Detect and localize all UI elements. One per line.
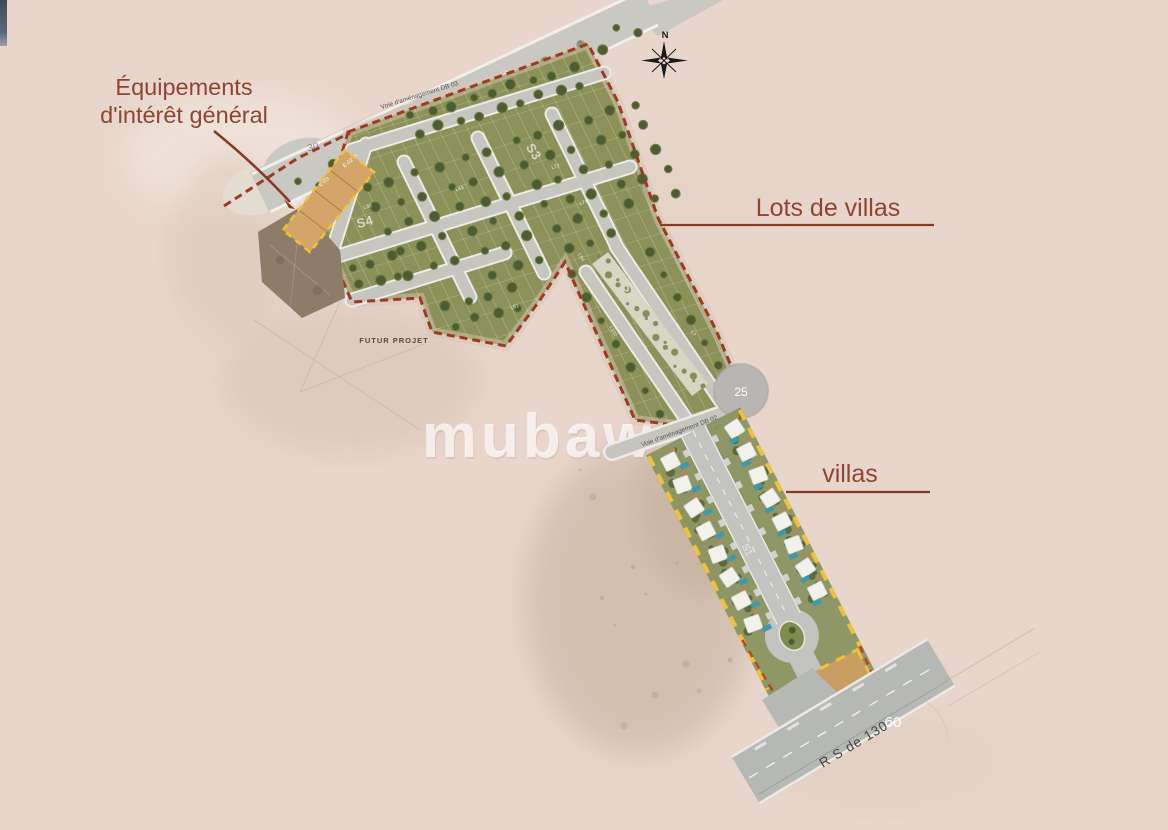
shrub-icon <box>643 310 650 317</box>
tree-icon <box>556 85 566 95</box>
shrub-icon <box>652 334 659 341</box>
tree-icon <box>686 315 696 325</box>
tree-icon <box>450 256 459 265</box>
tree-icon <box>462 154 470 162</box>
svg-text:mubaw: mubaw <box>422 402 656 471</box>
callout-villas: villas <box>786 460 930 492</box>
shrub-icon <box>626 302 629 305</box>
tree-icon <box>522 230 532 240</box>
tree-icon <box>586 239 594 247</box>
tree-icon <box>467 226 477 236</box>
tree-icon <box>465 298 473 306</box>
tree-icon <box>598 45 608 55</box>
tree-icon <box>553 120 563 130</box>
tree-icon <box>457 117 465 125</box>
tree-icon <box>598 317 605 324</box>
tree-icon <box>613 24 620 31</box>
tree-icon <box>446 102 456 112</box>
tree-icon <box>534 90 543 99</box>
site-plan-svg: mubaw mubaw 30 Voie d'aménagement DB 03 <box>0 0 1168 825</box>
tree-icon <box>394 273 402 281</box>
tree-icon <box>482 148 491 157</box>
tree-icon <box>701 339 708 346</box>
shrub-icon <box>692 379 695 382</box>
tree-icon <box>349 264 357 272</box>
tree-icon <box>634 29 642 37</box>
tree-icon <box>632 102 640 110</box>
shrub-icon <box>634 306 639 311</box>
terrain-speckle <box>645 593 648 596</box>
tree-icon <box>650 144 660 154</box>
tree-icon <box>714 361 722 369</box>
tree-icon <box>545 150 555 160</box>
tree-icon <box>404 217 413 226</box>
tree-icon <box>475 112 484 121</box>
tree-icon <box>645 247 655 257</box>
tree-icon <box>433 120 443 130</box>
tree-icon <box>366 260 375 269</box>
tree-icon <box>605 161 613 169</box>
shrub-icon <box>605 271 612 278</box>
tree-icon <box>579 165 588 174</box>
tree-icon <box>452 323 460 331</box>
tree-icon <box>387 250 397 260</box>
tree-icon <box>481 247 489 255</box>
tree-icon <box>515 212 524 221</box>
tree-icon <box>554 176 562 184</box>
tree-icon <box>429 211 439 221</box>
tree-icon <box>481 196 491 206</box>
tree-icon <box>612 340 620 348</box>
tree-icon <box>494 167 504 177</box>
terrain-speckle <box>697 689 702 694</box>
tree-icon <box>505 79 515 89</box>
tree-icon <box>642 387 649 394</box>
terrain-speckle <box>683 661 690 668</box>
terrain-speckle <box>728 658 733 663</box>
tree-icon <box>576 82 584 90</box>
tree-icon <box>397 198 405 206</box>
tree-icon <box>403 270 413 280</box>
tree-icon <box>639 120 648 129</box>
tree-icon <box>671 189 680 198</box>
tree-icon <box>624 198 634 208</box>
tree-icon <box>596 135 606 145</box>
shrub-icon <box>690 373 697 380</box>
svg-text:25: 25 <box>734 385 748 399</box>
tree-icon <box>626 362 636 372</box>
tree-icon <box>354 280 363 289</box>
svg-text:N: N <box>662 30 669 41</box>
terrain-speckle <box>614 624 617 627</box>
callout-equipements-line2: d'intérêt général <box>100 102 268 128</box>
tree-icon <box>489 217 497 225</box>
callout-equipements-line1: Équipements <box>115 74 252 100</box>
tree-icon <box>455 202 464 211</box>
tree-icon <box>411 169 419 177</box>
tree-icon <box>406 111 414 119</box>
tree-icon <box>384 228 392 236</box>
shrub-icon <box>616 278 619 281</box>
tree-icon <box>494 308 504 318</box>
tree-icon <box>440 301 450 311</box>
tree-icon <box>470 94 478 102</box>
tree-icon <box>488 89 497 98</box>
tree-icon <box>664 165 672 173</box>
shrub-icon <box>663 345 668 350</box>
tree-icon <box>295 178 302 185</box>
tree-icon <box>532 179 542 189</box>
shrub-icon <box>700 383 705 388</box>
terrain-speckle <box>676 562 679 565</box>
shrub-icon <box>597 254 600 257</box>
tree-icon <box>520 160 529 169</box>
tree-icon <box>660 271 667 278</box>
terrain-speckle <box>621 723 628 730</box>
tree-icon <box>569 62 579 72</box>
tree-icon <box>513 137 521 145</box>
shrub-icon <box>606 258 611 263</box>
tree-icon <box>617 180 626 189</box>
svg-text:villas: villas <box>822 460 878 488</box>
tree-icon <box>600 210 608 218</box>
tree-icon <box>541 200 549 208</box>
tree-icon <box>513 260 523 270</box>
tree-icon <box>415 130 424 139</box>
tree-icon <box>573 213 583 223</box>
shrub-icon <box>645 317 648 320</box>
corner-sliver <box>0 0 7 46</box>
tree-icon <box>438 232 446 240</box>
tree-icon <box>469 177 478 186</box>
tree-icon <box>618 131 626 139</box>
watermark: mubaw mubaw <box>422 402 657 473</box>
shrub-icon <box>653 321 658 326</box>
tree-icon <box>535 256 543 264</box>
tree-icon <box>566 195 575 204</box>
shrub-icon <box>671 349 678 356</box>
tree-icon <box>584 116 593 125</box>
svg-text:Lots de villas: Lots de villas <box>756 194 901 222</box>
tree-icon <box>488 271 497 280</box>
tree-icon <box>530 76 538 84</box>
terrain-speckle <box>600 596 605 601</box>
tree-icon <box>607 229 616 238</box>
tree-icon <box>552 224 561 233</box>
tree-icon <box>435 162 445 172</box>
tree-icon <box>484 292 493 301</box>
tree-icon <box>586 189 596 199</box>
tree-icon <box>507 282 517 292</box>
tree-icon <box>470 313 479 322</box>
tree-icon <box>501 241 510 250</box>
tree-icon <box>656 410 664 418</box>
tree-icon <box>516 100 524 108</box>
tree-icon <box>497 103 507 113</box>
tree-icon <box>673 293 681 301</box>
tree-icon <box>429 106 438 115</box>
tree-icon <box>564 243 574 253</box>
tree-icon <box>567 146 575 154</box>
tree-icon <box>430 262 438 270</box>
shrub-icon <box>682 369 687 374</box>
tree-icon <box>376 275 386 285</box>
terrain-speckle <box>631 565 636 570</box>
tree-icon <box>416 241 426 251</box>
tree-icon <box>547 72 556 81</box>
tree-icon <box>363 183 372 192</box>
tree-icon <box>582 292 592 302</box>
tree-icon <box>503 193 511 201</box>
terrain-speckle <box>590 494 597 501</box>
future-project-label: FUTUR PROJET <box>359 336 429 345</box>
shrub-icon <box>664 341 667 344</box>
tree-icon <box>605 105 615 115</box>
terrain-speckle <box>652 692 659 699</box>
compass-north-icon: N <box>641 30 688 79</box>
tree-icon <box>384 177 394 187</box>
tree-icon <box>418 192 427 201</box>
tree-icon <box>533 131 542 140</box>
shrub-icon <box>673 365 676 368</box>
